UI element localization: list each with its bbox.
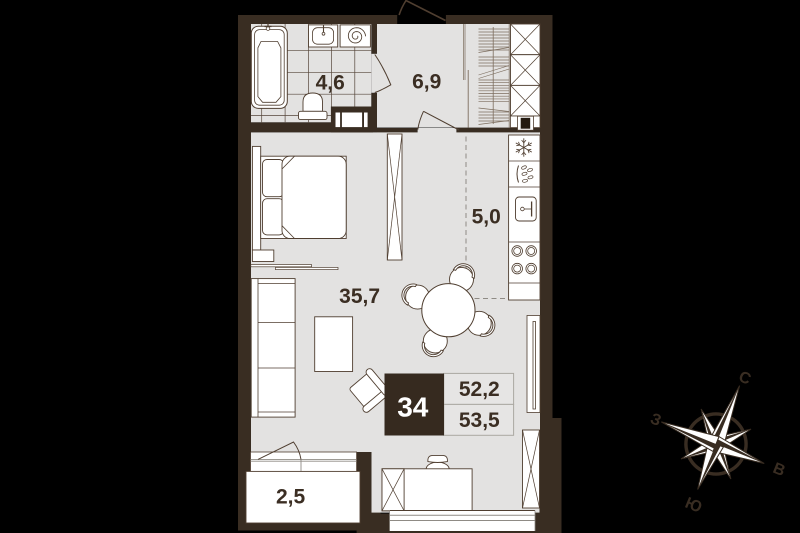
svg-text:2,5: 2,5 xyxy=(276,486,306,509)
svg-text:6,9: 6,9 xyxy=(412,70,441,93)
svg-text:35,7: 35,7 xyxy=(339,285,380,308)
svg-text:4,6: 4,6 xyxy=(316,71,345,94)
svg-text:52,2: 52,2 xyxy=(459,378,500,401)
svg-text:34: 34 xyxy=(397,392,429,423)
svg-text:53,5: 53,5 xyxy=(459,409,500,432)
svg-text:5,0: 5,0 xyxy=(472,206,501,229)
